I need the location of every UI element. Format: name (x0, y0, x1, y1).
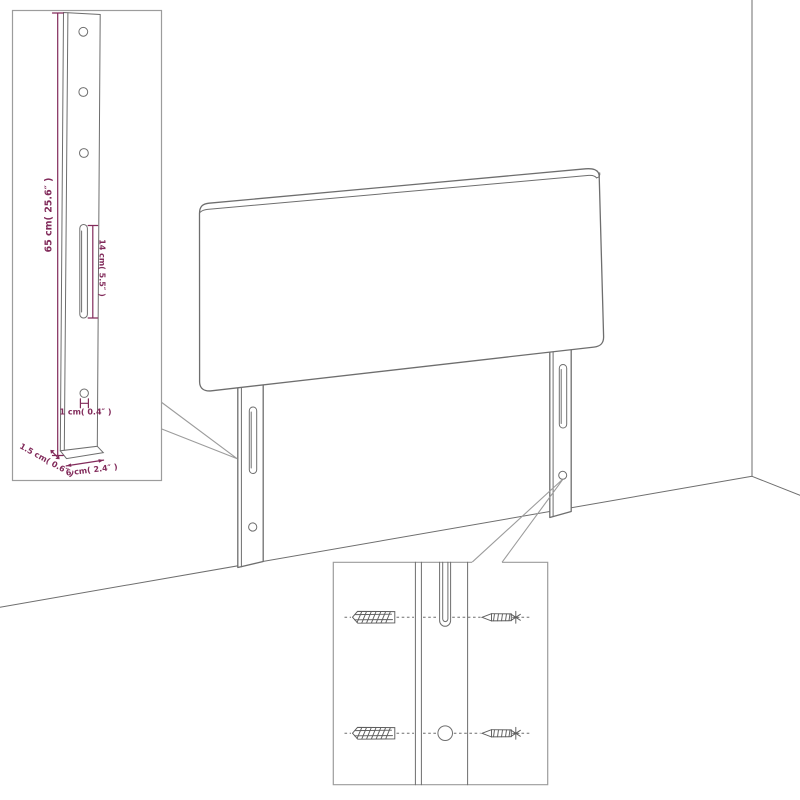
slot-length-label: 14 cm( 5.5″ ) (98, 239, 107, 297)
left-leg (238, 380, 263, 568)
leg-detail-inset: 65 cm( 25.6″ ) 14 cm( 5.5″ ) 1 cm( 0.4″ … (13, 11, 162, 481)
right-leg (550, 336, 571, 518)
inset-background (333, 562, 547, 784)
leg-height-label: 65 cm( 25.6″ ) (44, 177, 55, 252)
hole-diameter-label: 1 cm( 0.4″ ) (59, 408, 111, 417)
hardware-detail-inset (333, 562, 547, 784)
headboard-assembly-diagram: 65 cm( 25.6″ ) 14 cm( 5.5″ ) 1 cm( 0.4″ … (0, 0, 800, 800)
